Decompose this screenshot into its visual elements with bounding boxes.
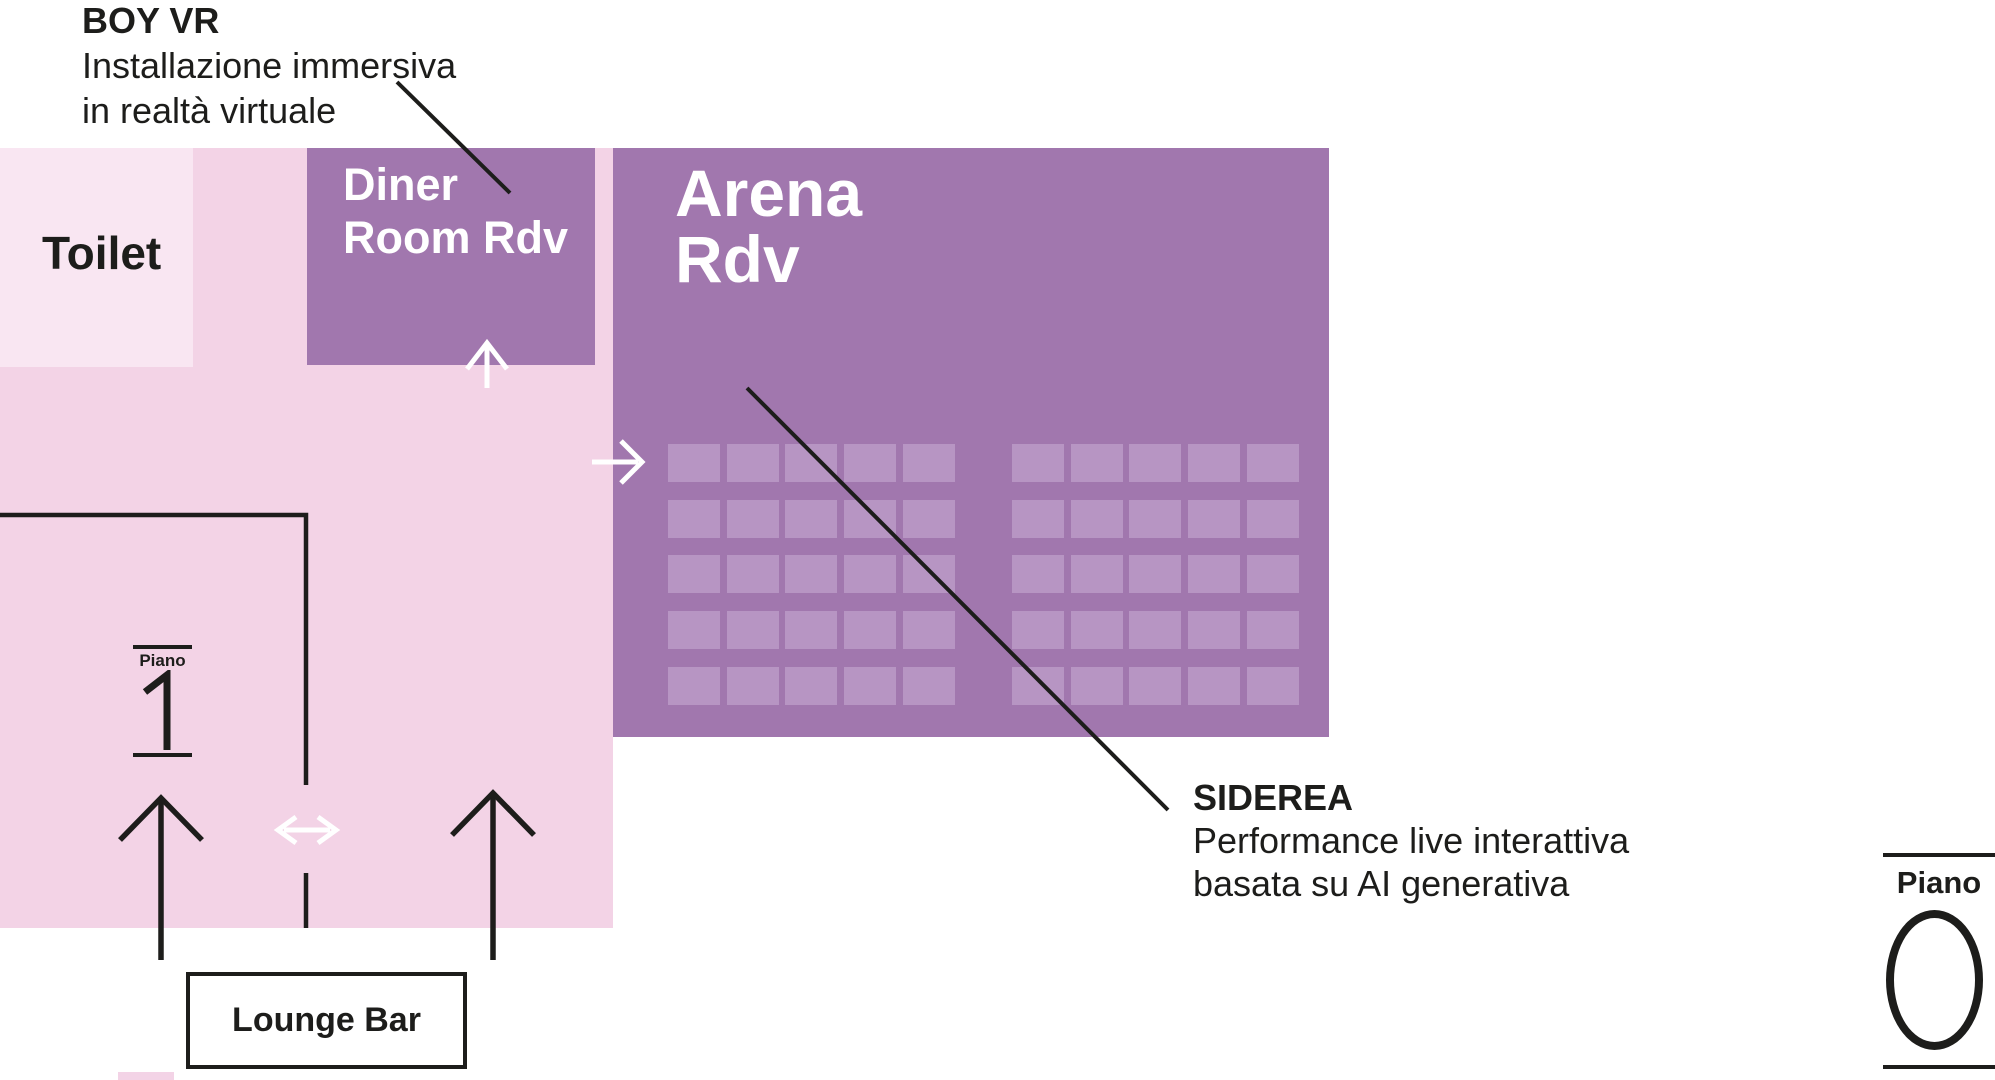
plan-overlay [0,0,1995,1080]
siderea-annotation: SIDEREA Performance live interattiva bas… [1193,776,1629,905]
siderea-leader-line [747,388,1168,810]
piano1-overline [133,645,192,649]
boyvr-annotation: BOY VR Installazione immersiva in realtà… [82,0,456,133]
numeral-one-glyph [140,670,180,755]
up-arrow-diner-icon [467,343,507,388]
lounge-bar-room: Lounge Bar [186,972,467,1069]
piano1-number: 1 [140,670,180,755]
up-arrow-right-icon [452,793,534,960]
piano0-overline [1883,853,1995,857]
stair-landing-sliver [118,1072,174,1080]
up-arrow-left-icon [120,798,202,960]
double-horizontal-arrow-icon [278,817,336,843]
piano1-underline [133,753,192,757]
piano1-label: Piano [133,651,192,671]
piano0-number: 0 [1886,910,1983,1050]
siderea-title: SIDEREA [1193,776,1629,819]
piano0-underline [1883,1065,1995,1069]
piano0-label: Piano [1883,865,1995,901]
right-arrow-arena-icon [592,441,642,483]
lounge-bar-label: Lounge Bar [232,1001,421,1040]
boyvr-title: BOY VR [82,0,456,43]
